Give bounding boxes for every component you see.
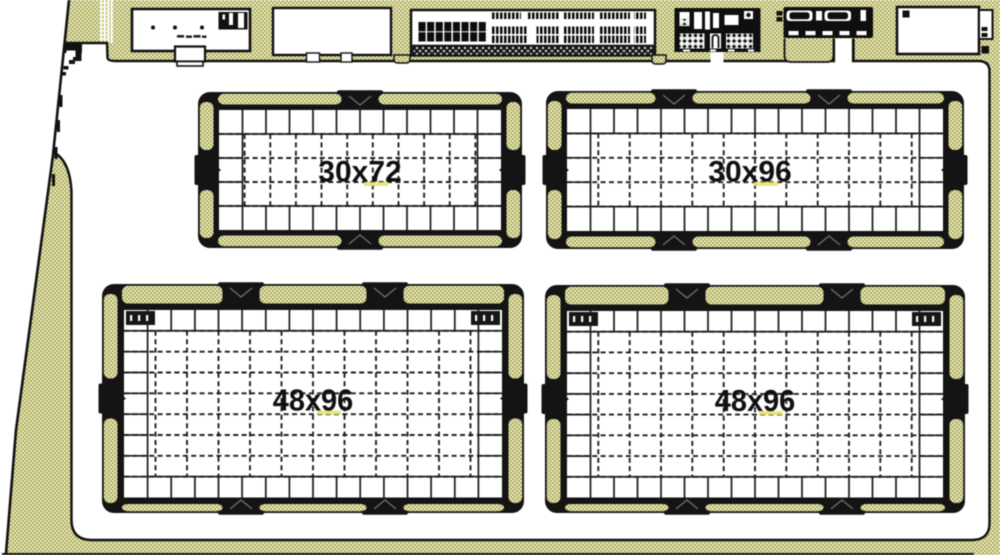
- svg-text:48x96: 48x96: [715, 384, 796, 418]
- svg-text:30x96: 30x96: [708, 156, 791, 189]
- svg-text:30x72: 30x72: [318, 156, 401, 189]
- svg-text:48x96: 48x96: [273, 384, 354, 418]
